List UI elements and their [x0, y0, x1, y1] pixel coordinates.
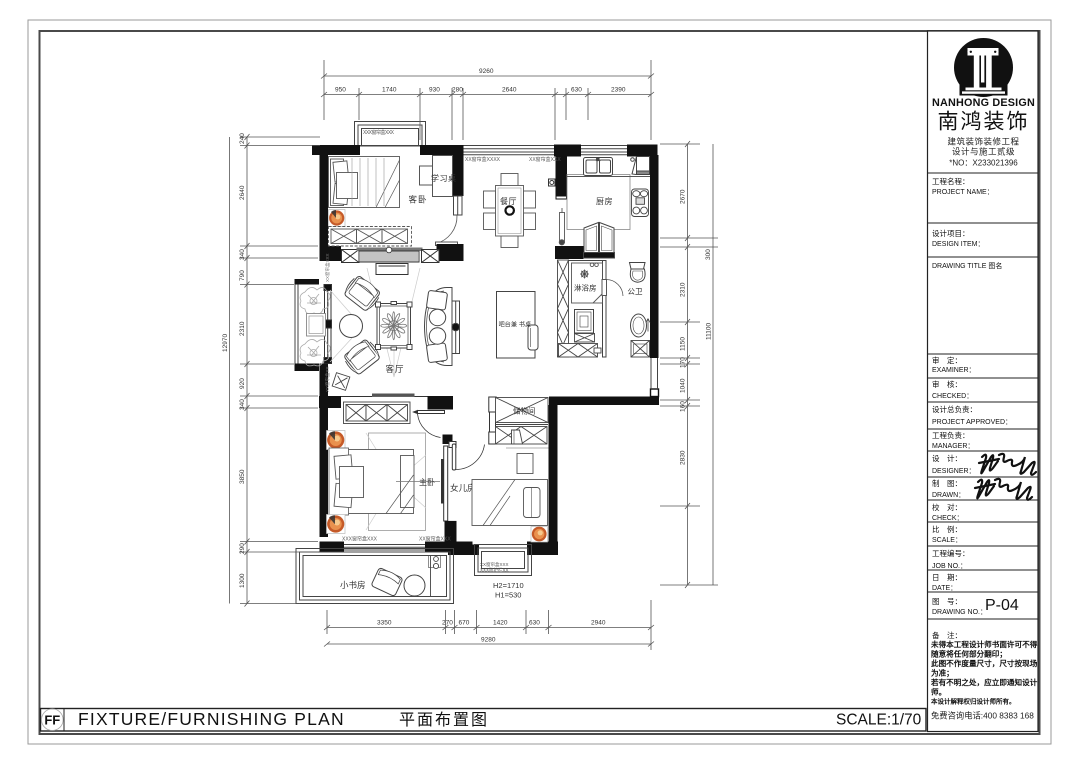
svg-text:DRAWING TITLE 图名: DRAWING TITLE 图名: [932, 261, 1002, 270]
svg-text:*NO：X233021396: *NO：X233021396: [949, 159, 1018, 168]
svg-text:P-04: P-04: [985, 597, 1019, 614]
svg-text:设计与施工贰级: 设计与施工贰级: [952, 147, 1015, 157]
svg-text:H2=1710: H2=1710: [493, 581, 524, 590]
svg-text:1150: 1150: [680, 337, 687, 351]
svg-text:3850: 3850: [239, 469, 246, 484]
svg-text:XX窗帘盒XXX: XX窗帘盒XXX: [529, 156, 561, 163]
svg-text:1040: 1040: [680, 378, 687, 393]
svg-text:XXX窗帘盒XXX: XXX窗帘盒XXX: [342, 536, 378, 543]
svg-text:790: 790: [239, 270, 246, 281]
svg-text:XX窗帘盒XXXX: XX窗帘盒XXXX: [465, 156, 501, 163]
svg-text:JOB NO.：: JOB NO.：: [932, 563, 967, 570]
svg-text:2390: 2390: [611, 87, 626, 94]
svg-text:670: 670: [459, 620, 470, 627]
svg-text:630: 630: [529, 620, 540, 627]
svg-text:950: 950: [335, 87, 346, 94]
svg-text:XXX防护栏XX: XXX防护栏XX: [480, 567, 509, 574]
svg-text:9260: 9260: [479, 68, 494, 75]
svg-text:DATE：: DATE：: [932, 585, 957, 592]
svg-text:未得本工程设计师书面许可不得: 未得本工程设计师书面许可不得: [931, 639, 1038, 649]
svg-text:XX窗帘盒XXX: XX窗帘盒XXX: [324, 253, 331, 282]
svg-text:9280: 9280: [481, 637, 496, 644]
svg-text:免费咨询电话:400 8383 168: 免费咨询电话:400 8383 168: [931, 711, 1034, 721]
svg-text:CHECK：: CHECK：: [932, 515, 964, 522]
svg-text:930: 930: [429, 87, 440, 94]
svg-text:2830: 2830: [680, 450, 687, 465]
svg-text:公卫: 公卫: [628, 287, 643, 296]
svg-text:2640: 2640: [502, 87, 517, 94]
svg-text:CHECKED：: CHECKED：: [932, 393, 973, 400]
svg-text:若有不明之处，应立即通知设计: 若有不明之处，应立即通知设计: [930, 677, 1038, 687]
svg-text:学习桌: 学习桌: [431, 173, 457, 183]
svg-text:EXAMINER：: EXAMINER：: [932, 367, 976, 374]
svg-text:此图不作度量尺寸，尺寸按现场: 此图不作度量尺寸，尺寸按现场: [931, 658, 1038, 668]
svg-text:2640: 2640: [239, 185, 246, 200]
svg-text:备 注：: 备 注：: [932, 630, 962, 640]
svg-text:客卧: 客卧: [409, 195, 428, 205]
svg-text:储物间: 储物间: [513, 406, 536, 416]
svg-text:160: 160: [680, 401, 687, 412]
svg-text:3350: 3350: [377, 620, 392, 627]
svg-text:餐厅: 餐厅: [500, 197, 517, 206]
svg-text:630: 630: [571, 87, 582, 94]
svg-text:师。: 师。: [931, 687, 946, 697]
svg-text:设计总负责：: 设计总负责：: [932, 404, 977, 414]
svg-text:170: 170: [680, 357, 687, 368]
svg-text:小书房: 小书房: [340, 580, 366, 590]
svg-text:1740: 1740: [382, 87, 397, 94]
svg-text:920: 920: [239, 378, 246, 389]
svg-text:XX窗帘盒XXX: XX窗帘盒XXX: [419, 536, 451, 543]
svg-text:2670: 2670: [680, 189, 687, 204]
svg-text:南鸿装饰: 南鸿装饰: [938, 111, 1030, 134]
svg-text:SCALE:1/70: SCALE:1/70: [836, 712, 922, 729]
svg-text:校 对：: 校 对：: [932, 502, 962, 512]
svg-text:SCALE：: SCALE：: [932, 537, 962, 544]
svg-text:DRAWING NO.：: DRAWING NO.：: [932, 609, 987, 616]
svg-text:2310: 2310: [680, 282, 687, 297]
svg-text:XXX窗帘盒XXX: XXX窗帘盒XXX: [363, 129, 395, 136]
svg-text:比 例：: 比 例：: [932, 524, 962, 534]
svg-text:工程编号：: 工程编号：: [932, 548, 970, 558]
svg-text:设 计：: 设 计：: [932, 453, 962, 463]
svg-text:H1=530: H1=530: [495, 591, 521, 600]
svg-text:2310: 2310: [239, 321, 246, 336]
svg-text:PROJECT NAME：: PROJECT NAME：: [932, 189, 994, 196]
svg-text:图 号：: 图 号：: [932, 597, 962, 606]
svg-text:设计项目：: 设计项目：: [932, 228, 970, 238]
svg-text:本设计解释权归设计师所有。: 本设计解释权归设计师所有。: [931, 697, 1016, 706]
svg-text:12970: 12970: [222, 334, 229, 352]
svg-text:290: 290: [239, 543, 246, 554]
svg-text:340: 340: [239, 399, 246, 410]
svg-text:为准；: 为准；: [931, 668, 954, 679]
svg-text:1420: 1420: [493, 620, 508, 627]
svg-text:300: 300: [705, 249, 712, 260]
svg-text:1300: 1300: [239, 573, 246, 588]
svg-text:工程名程：: 工程名程：: [932, 176, 970, 186]
svg-text:工程负责：: 工程负责：: [932, 430, 970, 440]
svg-text:审 定：: 审 定：: [932, 355, 962, 365]
svg-text:淋浴房: 淋浴房: [574, 283, 597, 293]
svg-text:240: 240: [239, 133, 246, 144]
svg-text:DRAWN：: DRAWN：: [932, 492, 965, 499]
svg-text:FF: FF: [44, 713, 60, 728]
svg-text:270: 270: [442, 620, 453, 627]
svg-text:FIXTURE/FURNISHING PLAN: FIXTURE/FURNISHING PLAN: [78, 709, 345, 729]
svg-text:340: 340: [239, 249, 246, 260]
svg-text:厨房: 厨房: [596, 196, 613, 206]
svg-text:11100: 11100: [706, 323, 713, 340]
svg-text:XX窗帘盒XX: XX窗帘盒XX: [324, 366, 331, 392]
svg-text:DESIGN ITEM：: DESIGN ITEM：: [932, 241, 985, 248]
svg-text:主卧: 主卧: [419, 477, 435, 487]
svg-text:建筑装饰装修工程: 建筑装饰装修工程: [947, 137, 1019, 147]
svg-text:平面布置图: 平面布置图: [399, 711, 489, 729]
svg-text:PROJECT APPROVED：: PROJECT APPROVED：: [932, 419, 1012, 426]
svg-text:制 图：: 制 图：: [932, 478, 962, 488]
svg-text:客厅: 客厅: [386, 364, 405, 374]
svg-text:280: 280: [452, 87, 463, 94]
svg-text:2940: 2940: [591, 620, 606, 627]
svg-text:日 期：: 日 期：: [932, 573, 962, 582]
svg-text:审 核：: 审 核：: [932, 379, 962, 389]
svg-text:NANHONG DESIGN: NANHONG DESIGN: [932, 97, 1035, 109]
svg-text:MANAGER：: MANAGER：: [932, 443, 974, 450]
svg-text:DESIGNER：: DESIGNER：: [932, 468, 976, 475]
svg-text:随意将任何部分翻印；: 随意将任何部分翻印；: [931, 649, 1007, 660]
svg-text:吧台兼 书桌: 吧台兼 书桌: [499, 321, 532, 329]
